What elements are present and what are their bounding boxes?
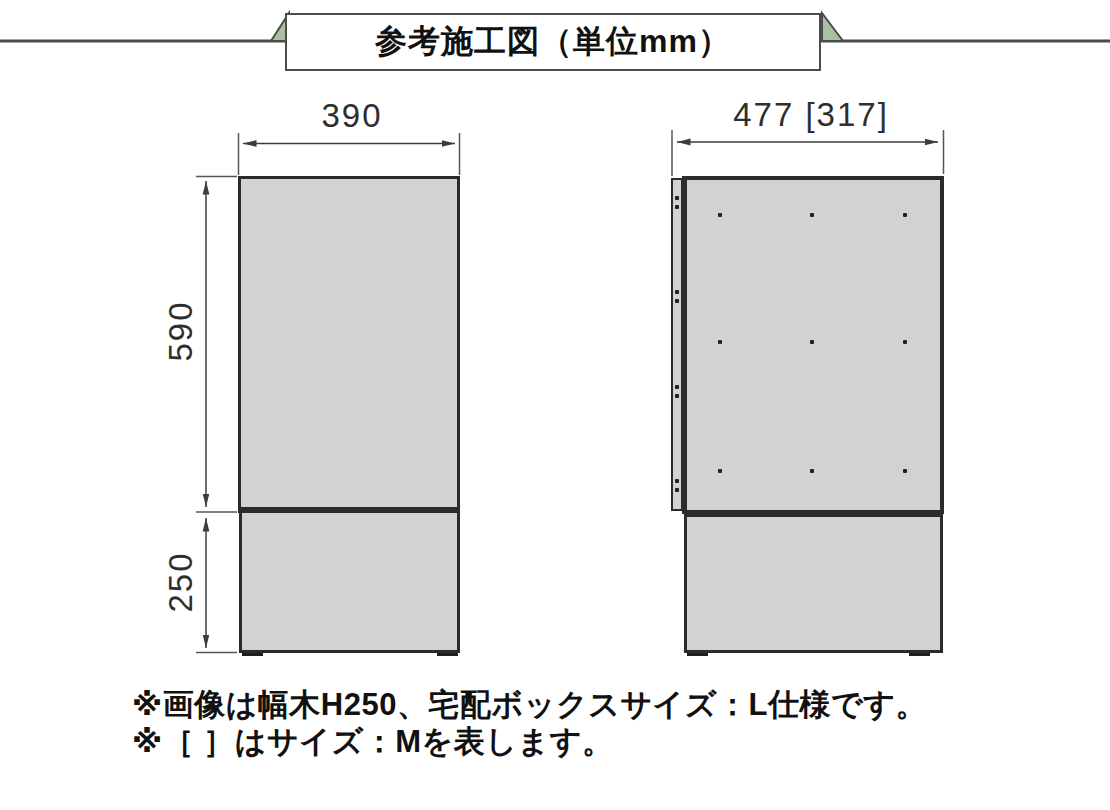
rivet-dot bbox=[810, 340, 814, 344]
front-width-dimension bbox=[239, 133, 460, 175]
front-width-label: 390 bbox=[321, 97, 382, 135]
front-view-baseboard bbox=[239, 513, 460, 653]
hinge-dot bbox=[675, 196, 679, 200]
hinge-dot bbox=[675, 299, 679, 303]
rivet-dot bbox=[718, 213, 722, 217]
hinge-dot bbox=[675, 385, 679, 389]
side-depth-label: 477 [317] bbox=[733, 96, 889, 134]
rivet-dot bbox=[810, 469, 814, 473]
hinge-dot bbox=[675, 479, 679, 483]
construction-diagram: 参考施工図（単位mm） 390 590 250 477 [317] ※画像は幅木… bbox=[0, 0, 1110, 810]
front-height-dimensions bbox=[196, 177, 237, 653]
rivet-dot bbox=[810, 213, 814, 217]
side-view-hinge-strip bbox=[671, 178, 683, 511]
side-view-baseboard bbox=[684, 514, 943, 653]
front-body-height-label: 590 bbox=[162, 300, 200, 361]
side-depth-dimension bbox=[672, 130, 944, 176]
hinge-dot bbox=[675, 488, 679, 492]
front-view-body bbox=[238, 176, 460, 513]
hinge-dot bbox=[675, 290, 679, 294]
rivet-dot bbox=[718, 469, 722, 473]
footnote-line-2: ※［ ］はサイズ：Mを表します。 bbox=[132, 723, 927, 760]
banner-fold-right bbox=[822, 13, 843, 41]
title-banner: 参考施工図（単位mm） bbox=[285, 13, 821, 71]
rivet-dot bbox=[903, 213, 907, 217]
hinge-dot bbox=[675, 205, 679, 209]
front-base-height-label: 250 bbox=[162, 551, 200, 612]
hinge-dot bbox=[675, 394, 679, 398]
footnotes: ※画像は幅木H250、宅配ボックスサイズ：L仕様です。 ※［ ］はサイズ：Mを表… bbox=[132, 686, 927, 760]
footnote-line-1: ※画像は幅木H250、宅配ボックスサイズ：L仕様です。 bbox=[132, 686, 927, 723]
rivet-dot bbox=[718, 340, 722, 344]
rivet-dot bbox=[903, 340, 907, 344]
side-view-body bbox=[682, 176, 944, 514]
rivet-dot bbox=[903, 469, 907, 473]
page-title: 参考施工図（単位mm） bbox=[375, 20, 731, 64]
